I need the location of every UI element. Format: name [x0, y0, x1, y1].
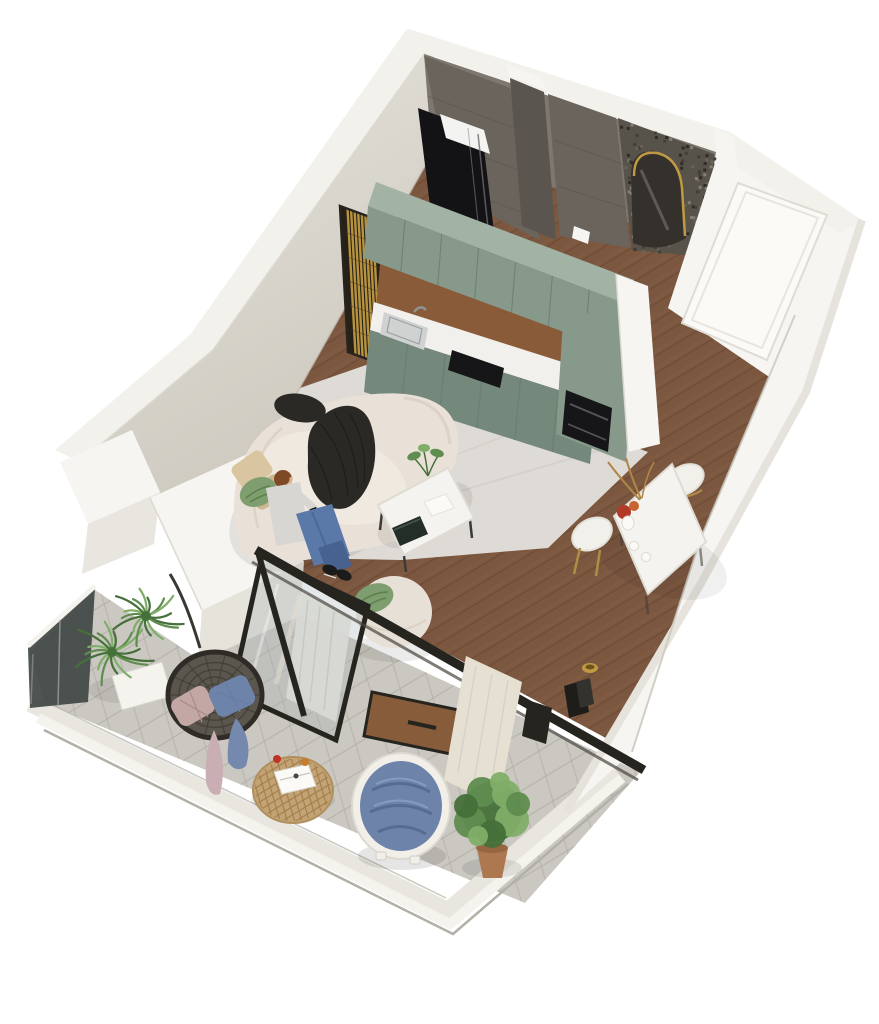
mosaic-tile [655, 136, 658, 139]
mosaic-tile [631, 124, 634, 127]
mosaic-tile [682, 147, 685, 150]
gold-bowl-inner [586, 665, 595, 670]
mosaic-tile [699, 186, 702, 189]
mosaic-tile [691, 165, 694, 168]
mosaic-tile [704, 184, 707, 187]
mosaic-tile [665, 136, 668, 139]
mosaic-tile [680, 162, 683, 165]
mosaic-tile [697, 155, 700, 158]
orange-fruit [301, 758, 309, 766]
fern-center [107, 647, 117, 657]
bush-foliage [454, 794, 478, 818]
mosaic-tile [627, 154, 630, 157]
apartment-3d-floorplan-render [0, 0, 879, 1024]
mosaic-tile [681, 159, 684, 162]
mosaic-tile [710, 165, 713, 168]
mosaic-tile [628, 190, 631, 193]
mosaic-tile [705, 158, 708, 161]
floorplan-scene [0, 0, 879, 1024]
mosaic-tile [685, 152, 688, 155]
mosaic-tile [628, 177, 631, 180]
mosaic-tile [710, 160, 713, 163]
mosaic-tile [698, 173, 701, 176]
mosaic-tile [628, 181, 631, 184]
mosaic-tile [703, 173, 706, 176]
mosaic-tile [699, 176, 702, 179]
mosaic-tile [704, 162, 707, 165]
mosaic-tile [703, 168, 706, 171]
mosaic-tile [705, 154, 708, 157]
mosaic-tile [642, 250, 645, 253]
bush-foliage [490, 772, 510, 792]
mosaic-tile [624, 166, 627, 169]
mosaic-tile [654, 131, 657, 134]
mosaic-tile [679, 154, 682, 157]
mosaic-tile [620, 126, 623, 129]
papasan-foot [410, 856, 420, 864]
mosaic-tile [633, 143, 636, 146]
mosaic-tile [680, 167, 683, 170]
cup [630, 542, 639, 551]
cup [642, 553, 651, 562]
bush-foliage [506, 792, 530, 816]
orange-flowers [629, 501, 639, 511]
mosaic-tile [669, 138, 672, 141]
mosaic-tile [698, 170, 701, 173]
mosaic-tile [640, 145, 643, 148]
fern-center [141, 611, 151, 621]
mosaic-tile [686, 145, 689, 148]
vase [622, 516, 634, 530]
red-fruit [273, 755, 281, 763]
bush-foliage [468, 826, 488, 846]
mosaic-tile [686, 232, 689, 235]
papasan-foot [376, 852, 386, 860]
small-dish [294, 774, 299, 779]
mosaic-tile [695, 177, 698, 180]
mosaic-tile [634, 248, 637, 251]
mosaic-tile [663, 140, 666, 143]
mosaic-tile [696, 190, 699, 193]
mosaic-tile [694, 218, 697, 221]
mosaic-tile [688, 201, 691, 204]
mosaic-tile [694, 206, 697, 209]
mosaic-tile [690, 146, 693, 149]
mosaic-tile [658, 250, 661, 253]
mosaic-tile [627, 127, 630, 130]
mosaic-tile [690, 216, 693, 219]
mosaic-tile [636, 134, 639, 137]
plant-leaf [418, 444, 430, 452]
